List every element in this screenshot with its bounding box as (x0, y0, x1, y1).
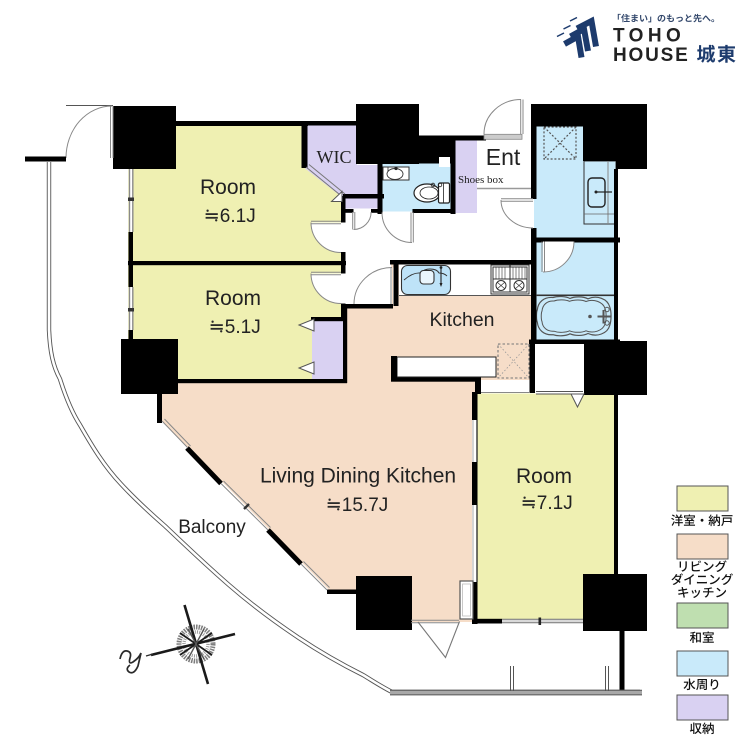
svg-text:HOUSE: HOUSE (613, 45, 690, 66)
svg-text:TOHO: TOHO (613, 26, 685, 47)
svg-text:Living Dining Kitchen: Living Dining Kitchen (260, 465, 456, 488)
svg-text:Kitchen: Kitchen (429, 309, 494, 331)
svg-text:Balcony: Balcony (178, 517, 246, 538)
svg-text:Room: Room (205, 287, 261, 310)
svg-text:WIC: WIC (317, 147, 352, 167)
svg-text:Room: Room (516, 465, 572, 488)
svg-text:5.1J: 5.1J (225, 317, 261, 338)
svg-text:15.7J: 15.7J (342, 495, 388, 516)
svg-text:Room: Room (200, 176, 256, 199)
svg-text:Shoes box: Shoes box (458, 174, 504, 186)
svg-text:6.1J: 6.1J (220, 206, 256, 227)
svg-text:7.1J: 7.1J (537, 493, 573, 514)
svg-text:Ent: Ent (486, 144, 521, 170)
